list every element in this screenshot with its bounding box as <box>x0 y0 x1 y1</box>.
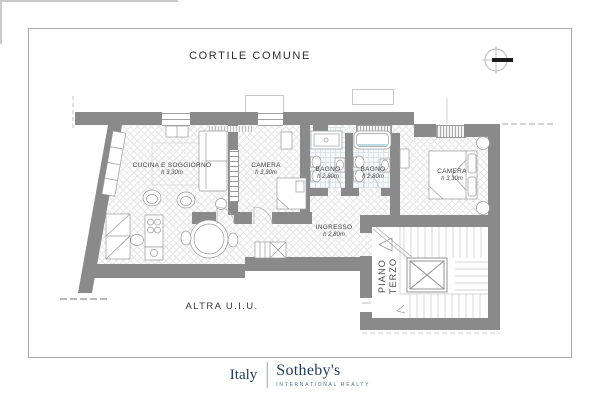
wall-segment <box>303 188 328 196</box>
page-title: CORTILE COMUNE <box>189 50 311 62</box>
brand-divider <box>266 362 267 388</box>
wall-segment <box>345 133 353 188</box>
wall-segment <box>192 212 216 224</box>
brand-footer: Italy Sotheby's INTERNATIONAL REALTY <box>230 362 370 388</box>
brand-name: Sotheby's <box>276 363 370 379</box>
radiator <box>209 126 254 132</box>
room-label-ingresso: INGRESSOh 2,80m <box>316 224 353 238</box>
wall-segment <box>75 112 162 125</box>
wall-segment <box>390 133 400 215</box>
wall-segment <box>341 188 359 196</box>
wall-segment <box>414 124 436 137</box>
wall-segment <box>488 124 500 330</box>
room-label-bagno-1: BAGNOh 2,80m <box>316 166 341 180</box>
wardrobe-sliding-door <box>229 150 239 202</box>
room-label-camera-2: CAMERAh 3,30m <box>437 168 467 182</box>
brand-tagline: INTERNATIONAL REALTY <box>276 382 370 388</box>
room-label-camera-1: CAMERAh 3,30m <box>251 162 281 176</box>
wall-segment <box>360 215 490 227</box>
scan-artifact <box>0 0 178 2</box>
window <box>162 113 190 126</box>
balcony-outline <box>352 89 394 105</box>
wall-segment <box>300 125 310 224</box>
scan-artifact <box>0 0 2 44</box>
wall-segment <box>190 112 258 125</box>
wall-segment <box>360 318 500 330</box>
wall-segment <box>360 256 372 298</box>
room-label-bagno-2: BAGNOh 2,80m <box>361 166 386 180</box>
brand-country: Italy <box>230 367 258 384</box>
wall-segment <box>93 264 245 278</box>
wall-segment <box>313 125 328 140</box>
wall-segment <box>234 212 252 224</box>
adjacent-unit-label: ALTRA U.I.U. <box>185 301 258 312</box>
window <box>436 125 466 138</box>
wall-segment <box>381 188 390 196</box>
wall-segment <box>245 257 367 271</box>
window <box>258 113 283 126</box>
window <box>356 125 392 135</box>
floorplan-page: CORTILE COMUNE <box>0 0 600 400</box>
room-label-cucina-soggiorno: CUCINA E SOGGIORNOh 3,30m <box>133 162 212 176</box>
stairwell-floor-label: PIANO TERZO <box>377 258 400 295</box>
wall-segment <box>283 112 414 125</box>
wall-segment <box>360 227 372 233</box>
